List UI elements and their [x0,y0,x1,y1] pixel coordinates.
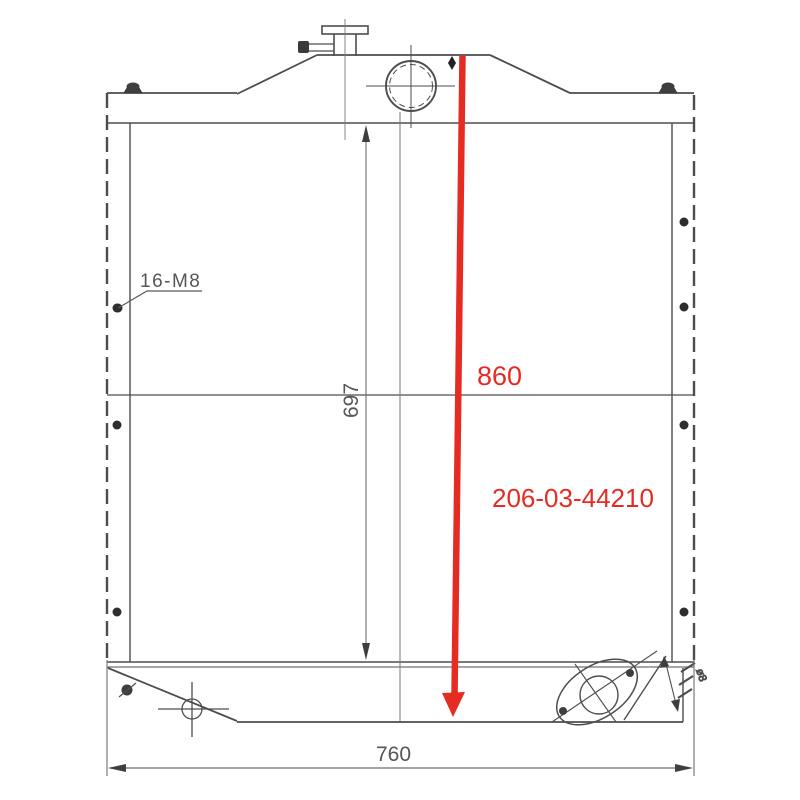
outlet-pipe: ø8 [545,646,708,739]
top-tank-right-slope [490,55,570,93]
dim-760-arrow-right [675,764,693,772]
dimension-697: 697 [340,125,370,660]
red-arrow-head [442,692,465,717]
overflow-pipe-tip [298,41,309,53]
dim-697-arrow-top [362,125,370,142]
overflow-pipe [298,41,334,53]
top-bolt-right [659,83,677,93]
top-mounting-bolts [124,83,677,93]
dim-760-arrow-left [108,764,126,772]
outlet-axis-arrowhead-left [559,707,567,715]
bolt-hole [113,421,122,430]
bottom-tank [108,656,683,737]
filler-opening [366,45,456,128]
chamfer-hatch-marks [678,663,695,698]
red-arrow-shaft [455,56,463,696]
outlet-note-label: ø8 [693,667,708,683]
red-annotation: 860 206-03-44210 [442,56,654,717]
center-mark-icon [448,56,456,70]
outlet-dim-arrow-bottom [671,699,680,712]
part-number-label: 206-03-44210 [492,483,654,513]
bottom-tank-right-chamfer [624,656,666,720]
bolt-spec-callout: 16-M8 [114,271,203,313]
bolt-hole [113,608,122,617]
overall-height-label: 860 [477,361,522,391]
bolt-hole [680,303,689,312]
radiator-drawing: ø8 [0,0,800,800]
dim-760-label: 760 [376,743,411,766]
bottom-left-bolt [119,683,136,697]
top-bolt-left [124,83,142,93]
radiator-drawing-canvas: ø8 [0,0,800,800]
filler-neck [298,19,368,140]
bolt-hole [680,608,689,617]
bolt-spec-label: 16-M8 [140,271,201,292]
top-tank-left-slope [237,55,317,94]
dim-697-arrow-bottom [362,643,370,660]
drain-plug [158,682,229,737]
outlet-axis-arrowhead-right [626,669,634,677]
bolt-hole [680,218,689,227]
bolt-hole [680,421,689,430]
radiator-frame [107,55,694,722]
dim-697-label: 697 [340,383,363,418]
